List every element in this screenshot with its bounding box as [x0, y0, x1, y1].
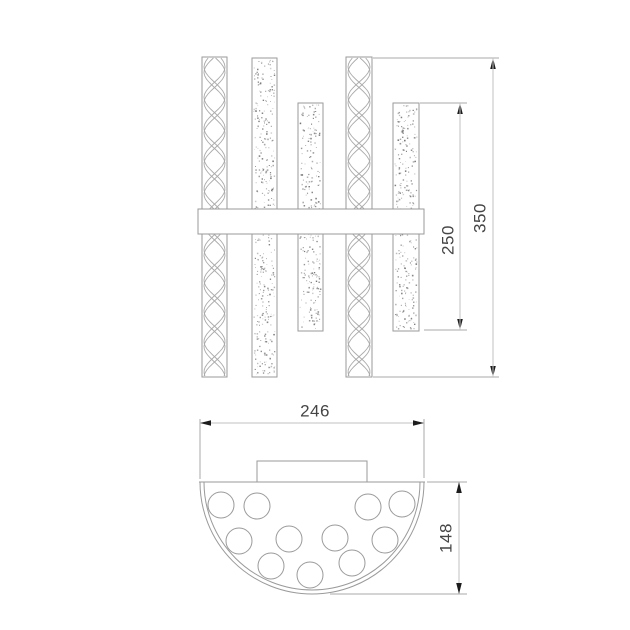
stipple-dot — [305, 186, 306, 187]
stipple-dot — [263, 253, 264, 254]
stipple-dot — [268, 237, 269, 238]
stipple-dot — [300, 307, 301, 308]
stipple-dot — [313, 286, 314, 287]
stipple-dot — [406, 181, 407, 182]
stipple-dot — [400, 325, 401, 326]
crystal-holes — [208, 491, 415, 588]
stipple-dot — [400, 311, 401, 312]
stipple-dot — [270, 138, 271, 139]
stipple-dot — [416, 259, 417, 260]
stipple-dot — [312, 161, 314, 163]
stipple-dot — [261, 140, 262, 141]
stipple-dot — [313, 114, 315, 116]
stipple-dot — [254, 78, 255, 79]
stipple-dot — [270, 89, 271, 90]
stipple-dot — [319, 185, 320, 186]
stipple-dot — [262, 318, 263, 319]
stipple-dot — [268, 367, 270, 369]
stipple-dot — [396, 290, 397, 291]
stipple-dot — [300, 238, 301, 239]
stipple-dot — [411, 183, 413, 185]
stipple-dot — [267, 104, 268, 105]
stipple-dot — [257, 350, 258, 351]
stipple-dot — [273, 204, 274, 205]
stipple-dot — [411, 150, 413, 152]
stipple-dot — [316, 277, 317, 278]
stipple-dot — [398, 328, 399, 329]
stipple-dot — [262, 301, 264, 303]
stipple-dot — [264, 207, 265, 208]
stipple-dot — [268, 316, 270, 318]
stipple-dot — [396, 204, 397, 205]
stipple-dot — [262, 128, 264, 130]
stipple-dot — [312, 249, 313, 250]
stipple-dot — [258, 300, 259, 301]
stipple-dot — [261, 269, 262, 270]
stipple-dot — [397, 207, 398, 208]
stipple-dot — [270, 324, 271, 325]
stipple-dot — [305, 237, 306, 238]
stipple-dot — [314, 111, 315, 112]
stipple-dot — [264, 286, 266, 288]
backplate — [257, 461, 367, 482]
stipple-dot — [309, 189, 310, 190]
stipple-dot — [315, 108, 316, 109]
stipple-dot — [256, 182, 257, 183]
stipple-dot — [268, 199, 269, 200]
stipple-dot — [315, 300, 316, 301]
stipple-dot — [265, 364, 266, 365]
stipple-dot — [260, 255, 261, 256]
stipple-dot — [268, 319, 269, 320]
crystal-hole — [339, 550, 365, 576]
stipple-dot — [255, 166, 256, 167]
stipple-dot — [414, 155, 415, 156]
stipple-dot — [399, 158, 400, 159]
stipple-dot — [415, 269, 416, 270]
stipple-dot — [260, 284, 261, 285]
stipple-dot — [270, 279, 271, 280]
stipple-dot — [402, 298, 403, 299]
stipple-dot — [260, 95, 261, 96]
stipple-dot — [267, 121, 268, 122]
stipple-dot — [403, 286, 404, 287]
stipple-dot — [319, 282, 320, 283]
stipple-dot — [262, 113, 264, 115]
stipple-dot — [255, 359, 256, 360]
stipple-dot — [263, 290, 264, 291]
stipple-dot — [407, 128, 409, 129]
stipple-dot — [410, 124, 411, 125]
stipple-dot — [268, 122, 269, 123]
stipple-dot — [255, 355, 256, 356]
stipple-dot — [274, 366, 275, 367]
stipple-dot — [255, 264, 256, 265]
stipple-dot — [312, 320, 314, 322]
stipple-dot — [401, 264, 402, 265]
stipple-dot — [263, 313, 264, 314]
stipple-dot — [416, 152, 417, 153]
stipple-dot — [395, 269, 396, 270]
stipple-dot — [399, 253, 400, 254]
stipple-dot — [405, 303, 406, 304]
stipple-dot — [269, 192, 270, 193]
stipple-dot — [255, 201, 257, 203]
stipple-dot — [403, 105, 404, 106]
stipple-dot — [398, 139, 400, 141]
stipple-dot — [262, 295, 264, 297]
stipple-dot — [267, 183, 268, 184]
stipple-dot — [305, 270, 306, 271]
stipple-dot — [261, 276, 262, 277]
stipple-dot — [401, 293, 403, 295]
stipple-dot — [264, 179, 265, 180]
stipple-dot — [254, 111, 255, 112]
stipple-dot — [399, 284, 400, 285]
stipple-dot — [274, 287, 275, 288]
stipple-dot — [257, 315, 258, 316]
stipple-dot — [410, 328, 411, 329]
stipple-dot — [318, 296, 319, 297]
crystal-hole — [276, 526, 302, 552]
stipple-dot — [406, 151, 407, 152]
stipple-dot — [257, 207, 258, 208]
stipple-dot — [320, 253, 321, 254]
stipple-dot — [312, 290, 313, 291]
stipple-dot — [257, 366, 258, 367]
stipple-dot — [314, 206, 315, 207]
stipple-dot — [406, 144, 407, 145]
stipple-dot — [272, 289, 273, 290]
stipple-dot — [274, 331, 275, 332]
stipple-dot — [311, 235, 312, 236]
stipple-dot — [270, 101, 271, 102]
stipple-dot — [401, 188, 402, 189]
stipple-dot — [408, 275, 409, 276]
stipple-dot — [257, 338, 259, 340]
stipple-dot — [396, 253, 398, 255]
stipple-dot — [408, 273, 409, 274]
stipple-dot — [408, 190, 409, 191]
stipple-dot — [319, 172, 320, 173]
stipple-dot — [273, 188, 274, 189]
stipple-dot — [403, 326, 404, 327]
stipple-dot — [302, 113, 303, 114]
stipple-dot — [302, 188, 304, 190]
stipple-dot — [318, 185, 319, 186]
crystal-hole — [226, 528, 252, 554]
stipple-dot — [410, 157, 412, 159]
stipple-dot — [409, 282, 410, 283]
stipple-dot — [311, 167, 312, 168]
stipple-dot — [313, 240, 314, 241]
stipple-dot — [396, 125, 397, 126]
stipple-dot — [268, 301, 269, 302]
stipple-dot — [259, 91, 260, 92]
stipple-dot — [303, 136, 304, 137]
stipple-dot — [318, 171, 319, 172]
stipple-dot — [269, 165, 270, 166]
stipple-dot — [262, 314, 264, 316]
stipple-dot — [396, 174, 397, 175]
stipple-dot — [308, 115, 309, 116]
stipple-dot — [268, 235, 269, 236]
stipple-dot — [401, 305, 402, 306]
stipple-dot — [402, 130, 403, 131]
stipple-dot — [414, 312, 415, 313]
stipple-dot — [304, 264, 305, 265]
stipple-dot — [406, 306, 407, 307]
stipple-dot — [319, 267, 320, 268]
stipple-dot — [274, 75, 275, 76]
stipple-dot — [254, 350, 256, 352]
stipple-dot — [264, 144, 266, 146]
stipple-dot — [254, 109, 256, 111]
stipple-dot — [405, 170, 407, 172]
stipple-dot — [318, 176, 319, 177]
stipple-dot — [266, 101, 267, 102]
stipple-dot — [307, 177, 309, 179]
stipple-dot — [274, 96, 275, 97]
stipple-dot — [314, 324, 316, 326]
stipple-dot — [409, 315, 410, 316]
stipple-dot — [273, 334, 275, 336]
stipple-dot — [262, 158, 264, 160]
stipple-dot — [319, 321, 320, 322]
stipple-dot — [265, 341, 266, 342]
drawing-canvas: 250 350 246 — [0, 0, 630, 630]
stipple-dot — [258, 74, 259, 75]
stipple-dot — [414, 137, 416, 139]
stipple-dot — [405, 268, 406, 269]
stipple-dot — [403, 194, 404, 195]
stipple-dot — [313, 118, 314, 119]
stipple-dot — [263, 292, 264, 293]
stipple-dot — [416, 247, 417, 248]
crystal-hole — [258, 553, 284, 579]
stipple-dot — [264, 335, 265, 336]
crystal-hole — [355, 494, 381, 520]
stipple-dot — [259, 239, 261, 241]
stipple-dot — [271, 126, 272, 127]
stipple-dot — [259, 176, 261, 178]
stipple-dot — [255, 169, 256, 170]
stipple-dot — [311, 300, 312, 301]
stipple-dot — [267, 313, 268, 314]
stipple-dot — [307, 116, 308, 117]
stipple-dot — [263, 372, 264, 373]
stipple-dot — [309, 312, 310, 313]
stipple-dot — [397, 119, 398, 120]
stipple-dot — [401, 198, 402, 199]
stipple-dot — [255, 258, 256, 259]
stipple-dot — [263, 100, 264, 101]
stipple-dot — [408, 167, 409, 168]
stipple-dot — [266, 362, 267, 363]
stipple-dot — [274, 351, 275, 352]
stipple-dot — [309, 281, 310, 282]
stipple-dot — [319, 315, 320, 316]
stipple-dot — [273, 355, 274, 356]
stipple-dot — [266, 131, 267, 132]
stipple-dot — [273, 293, 274, 294]
stipple-dot — [260, 83, 262, 85]
stipple-dot — [272, 353, 273, 354]
stipple-dot — [315, 328, 316, 329]
stipple-dot — [405, 161, 406, 162]
stipple-dot — [268, 290, 269, 291]
stipple-dot — [409, 309, 410, 310]
stipple-dot — [319, 291, 320, 292]
stipple-dot — [265, 91, 266, 92]
stipple-dot — [271, 238, 272, 239]
stipple-dot — [262, 171, 263, 172]
stipple-dot — [274, 84, 276, 86]
stipple-dot — [274, 102, 275, 103]
stipple-dot — [415, 196, 416, 197]
stipple-dot — [314, 272, 315, 273]
stipple-dot — [405, 120, 406, 121]
stipple-dot — [399, 296, 400, 297]
stipple-dot — [396, 235, 397, 236]
stipple-dot — [257, 253, 259, 255]
stipple-dot — [310, 128, 311, 129]
stipple-dot — [273, 93, 274, 94]
stipple-dot — [415, 291, 416, 292]
stipple-dot — [398, 268, 399, 269]
stipple-dot — [274, 371, 275, 372]
stipple-dot — [271, 95, 272, 96]
stipple-dot — [317, 287, 318, 288]
stipple-dot — [307, 193, 308, 194]
stipple-dot — [413, 247, 414, 248]
stipple-dot — [269, 372, 270, 373]
stipple-dot — [303, 322, 304, 323]
stipple-dot — [257, 321, 258, 322]
stipple-dot — [255, 119, 256, 120]
stipple-dot — [396, 327, 397, 328]
dim-label-350: 350 — [471, 203, 490, 233]
stipple-dot — [270, 172, 271, 173]
stipple-dot — [257, 333, 259, 335]
stipple-dot — [264, 123, 265, 124]
stipple-dot — [304, 205, 306, 207]
stipple-dot — [310, 237, 311, 238]
stipple-dot — [273, 268, 274, 269]
stipple-dot — [258, 158, 259, 159]
stipple-dot — [273, 272, 275, 274]
stipple-dot — [410, 320, 411, 321]
stipple-dot — [266, 258, 267, 259]
stipple-dot — [269, 180, 270, 181]
stipple-dot — [255, 239, 256, 240]
stipple-dot — [410, 196, 412, 198]
stipple-dot — [266, 309, 267, 310]
stipple-dot — [399, 115, 400, 116]
stipple-dot — [406, 322, 407, 323]
stipple-dot — [311, 124, 312, 125]
stipple-dot — [308, 127, 309, 128]
stipple-dot — [316, 176, 317, 177]
stipple-dot — [307, 150, 308, 151]
stipple-dot — [315, 136, 316, 137]
stipple-dot — [415, 157, 416, 158]
stipple-dot — [256, 206, 257, 207]
stipple-dot — [255, 73, 256, 74]
stipple-dot — [311, 207, 312, 208]
stipple-dot — [319, 276, 320, 277]
stipple-dot — [269, 350, 270, 351]
stipple-dot — [271, 132, 273, 134]
stipple-dot — [266, 181, 267, 182]
stipple-dot — [311, 282, 312, 283]
stipple-dot — [407, 125, 408, 126]
stipple-dot — [264, 66, 265, 67]
stipple-dot — [267, 139, 269, 141]
stipple-dot — [268, 147, 269, 148]
stipple-dot — [260, 152, 261, 153]
stipple-dot — [405, 293, 406, 294]
stipple-dot — [273, 151, 274, 152]
stipple-dot — [396, 201, 398, 203]
stipple-dot — [259, 331, 260, 332]
stipple-dot — [416, 267, 417, 268]
stipple-dot — [273, 108, 274, 109]
stipple-dot — [318, 105, 319, 106]
stipple-dot — [398, 154, 399, 155]
stipple-dot — [257, 363, 258, 364]
stipple-dot — [309, 134, 310, 135]
stipple-dot — [259, 119, 260, 120]
stipple-dot — [254, 75, 255, 76]
stipple-dot — [407, 138, 408, 139]
stipple-dot — [274, 276, 275, 277]
stipple-dot — [310, 156, 311, 157]
stipple-dot — [413, 151, 414, 152]
stipple-dot — [308, 261, 309, 262]
stipple-dot — [265, 334, 266, 335]
stipple-dot — [254, 149, 255, 150]
stipple-dot — [406, 190, 407, 191]
stipple-dot — [409, 110, 411, 112]
stipple-dot — [304, 251, 305, 252]
stipple-dot — [403, 149, 404, 150]
stipple-dot — [308, 174, 309, 175]
stipple-dot — [410, 240, 411, 241]
dim-label-246: 246 — [300, 402, 330, 421]
stipple-dot — [309, 234, 310, 235]
stipple-dot — [266, 133, 268, 135]
stipple-dot — [414, 126, 415, 127]
stipple-dot — [412, 275, 414, 277]
stipple-dot — [406, 145, 408, 147]
stipple-dot — [319, 134, 321, 136]
stipple-dot — [316, 313, 317, 314]
stipple-dot — [303, 180, 304, 181]
stipple-dot — [259, 155, 261, 157]
stipple-dot — [254, 317, 255, 318]
stipple-dot — [413, 110, 414, 111]
stipple-dot — [402, 192, 403, 193]
stipple-dot — [303, 277, 304, 278]
stipple-dot — [264, 353, 266, 355]
stipple-dot — [267, 331, 268, 332]
stipple-dot — [409, 320, 410, 321]
stipple-dot — [404, 265, 405, 266]
stipple-dot — [319, 260, 320, 261]
stipple-dot — [262, 74, 263, 75]
stipple-dot — [261, 351, 262, 352]
